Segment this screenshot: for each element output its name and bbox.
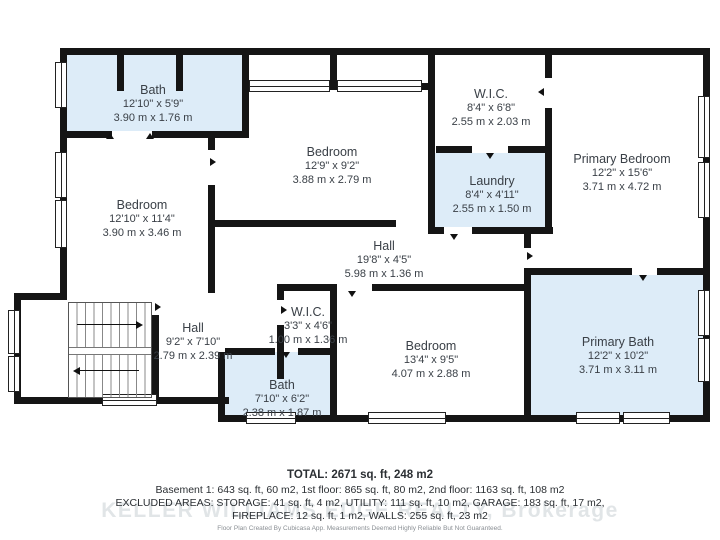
door-marker — [486, 153, 494, 159]
wall-bath-lower-top-a — [225, 348, 275, 355]
window — [8, 356, 20, 392]
wall-bath-upper-bottom-b — [152, 131, 249, 138]
excluded-areas-text-2: FIREPLACE: 12 sq. ft, 1 m2, WALLS: 255 s… — [0, 510, 720, 522]
room-dim-imperial: 9'2" x 7'10" — [154, 336, 233, 350]
room-name: Primary Bath — [579, 335, 657, 349]
room-name: Bedroom — [103, 198, 182, 212]
window — [55, 152, 67, 198]
door-marker — [639, 275, 647, 281]
window — [368, 412, 446, 424]
room-dim-imperial: 8'4" x 6'8" — [452, 102, 531, 116]
wall-wic-laundry-b — [508, 146, 546, 153]
room-dim-imperial: 8'4" x 4'11" — [453, 189, 532, 203]
wall-wic-right-b — [545, 108, 552, 234]
window — [55, 200, 67, 248]
wall-laundry-bottom-b — [472, 227, 553, 234]
wall-wic-small-left-a — [277, 284, 284, 300]
stairs-up-arrow — [77, 324, 137, 325]
room-name: Bath — [114, 83, 193, 97]
wall-wic-right-a — [545, 48, 552, 78]
room-name: Hall — [345, 239, 424, 253]
window — [576, 412, 620, 424]
room-dim-metric: 3.88 m x 2.79 m — [293, 174, 372, 188]
wall-bedroom-lower-top — [372, 284, 525, 291]
wall-bath-upper-right — [242, 48, 249, 138]
room-label-primary-bath: Primary Bath 12'2" x 10'2" 3.71 m x 3.11… — [579, 335, 657, 378]
wall-wic-small-top — [277, 284, 337, 291]
wall-window-stub — [330, 48, 337, 90]
wall-primary-bedroom-stub — [524, 228, 531, 248]
wall-bedroom-left-right-b — [208, 185, 215, 293]
door-marker — [155, 303, 161, 311]
wall-primary-bath-top-b — [657, 268, 710, 275]
door-marker — [210, 158, 216, 166]
room-dim-metric: 2.38 m x 1.87 m — [243, 407, 322, 421]
door-marker — [282, 352, 290, 358]
room-label-primary-bedroom: Primary Bedroom 12'2" x 15'6" 3.71 m x 4… — [573, 152, 670, 195]
room-dim-imperial: 12'10" x 5'9" — [114, 98, 193, 112]
wall-bath-lower-stub — [277, 355, 284, 379]
room-dim-metric: 3.90 m x 3.46 m — [103, 227, 182, 241]
room-label-bath-lower: Bath 7'10" x 6'2" 2.38 m x 1.87 m — [243, 378, 322, 421]
room-label-bath-upper: Bath 12'10" x 5'9" 3.90 m x 1.76 m — [114, 83, 193, 126]
room-label-laundry: Laundry 8'4" x 4'11" 2.55 m x 1.50 m — [453, 174, 532, 217]
window — [249, 80, 330, 92]
disclaimer-text: Floor Plan Created By Cubicasa App. Meas… — [0, 525, 720, 532]
window — [337, 80, 422, 92]
room-label-wic-upper: W.I.C. 8'4" x 6'8" 2.55 m x 2.03 m — [452, 87, 531, 130]
room-name: Bedroom — [293, 145, 372, 159]
room-name: Primary Bedroom — [573, 152, 670, 166]
room-dim-metric: 5.98 m x 1.36 m — [345, 268, 424, 282]
room-name: Bath — [243, 378, 322, 392]
room-name: Hall — [154, 321, 233, 335]
window — [698, 162, 710, 218]
wall-bedroom-mid-bottom — [215, 220, 396, 227]
room-dim-metric: 3.90 m x 1.76 m — [114, 112, 193, 126]
wall-bedroom-left-right-a — [208, 131, 215, 150]
door-marker — [106, 133, 114, 139]
room-label-hall-center: Hall 19'8" x 4'5" 5.98 m x 1.36 m — [345, 239, 424, 282]
room-dim-imperial: 7'10" x 6'2" — [243, 393, 322, 407]
stairs-down-arrow — [79, 370, 139, 371]
room-dim-metric: 2.79 m x 2.39 m — [154, 350, 233, 364]
room-dim-metric: 3.71 m x 3.11 m — [579, 364, 657, 378]
room-dim-imperial: 12'2" x 10'2" — [579, 350, 657, 364]
door-marker — [450, 234, 458, 240]
door-marker — [538, 88, 544, 96]
room-name: W.I.C. — [452, 87, 531, 101]
room-dim-metric: 4.07 m x 2.88 m — [392, 368, 471, 382]
room-dim-metric: 3.71 m x 4.72 m — [573, 181, 670, 195]
room-dim-metric: 2.55 m x 1.50 m — [453, 203, 532, 217]
wall-laundry-bottom-a — [428, 227, 444, 234]
room-dim-imperial: 3'3" x 4'6" — [269, 320, 348, 334]
room-name: Bedroom — [392, 339, 471, 353]
floor-areas-text: Basement 1: 643 sq. ft, 60 m2, 1st floor… — [0, 484, 720, 496]
door-marker — [146, 133, 154, 139]
room-name: W.I.C. — [269, 305, 348, 319]
wall-bath-lower-top-b — [298, 348, 337, 355]
room-dim-imperial: 12'9" x 9'2" — [293, 160, 372, 174]
stairs — [68, 302, 152, 398]
excluded-areas-text-1: EXCLUDED AREAS: STORAGE: 41 sq. ft, 4 m2… — [0, 497, 720, 509]
room-label-bedroom-lower: Bedroom 13'4" x 9'5" 4.07 m x 2.88 m — [392, 339, 471, 382]
room-name: Laundry — [453, 174, 532, 188]
window — [698, 96, 710, 158]
room-dim-imperial: 12'10" x 11'4" — [103, 213, 182, 227]
window — [8, 310, 20, 354]
room-label-bedroom-middle: Bedroom 12'9" x 9'2" 3.88 m x 2.79 m — [293, 145, 372, 188]
wall-primary-bath-left — [524, 268, 531, 422]
room-dim-metric: 2.55 m x 2.03 m — [452, 116, 531, 130]
room-label-bedroom-left: Bedroom 12'10" x 11'4" 3.90 m x 3.46 m — [103, 198, 182, 241]
room-dim-imperial: 13'4" x 9'5" — [392, 354, 471, 368]
window — [698, 338, 710, 382]
wall-top — [60, 48, 710, 55]
window — [623, 412, 670, 424]
room-dim-metric: 1.00 m x 1.36 m — [269, 334, 348, 348]
door-marker — [527, 252, 533, 260]
stair-landing — [69, 347, 151, 355]
wall-primary-bath-top-a — [524, 268, 632, 275]
room-label-hall-left: Hall 9'2" x 7'10" 2.79 m x 2.39 m — [154, 321, 233, 364]
wall-bath-upper-bottom-a — [60, 131, 112, 138]
wall-bay-top — [14, 293, 67, 300]
floor-plan-page: Bath 12'10" x 5'9" 3.90 m x 1.76 m Bedro… — [0, 0, 720, 540]
total-area-text: TOTAL: 2671 sq. ft, 248 m2 — [0, 469, 720, 481]
window — [698, 290, 710, 336]
wall-wic-left — [428, 48, 435, 234]
room-dim-imperial: 19'8" x 4'5" — [345, 254, 424, 268]
door-marker — [348, 291, 356, 297]
room-dim-imperial: 12'2" x 15'6" — [573, 167, 670, 181]
wall-wic-laundry-a — [436, 146, 472, 153]
window — [55, 62, 67, 108]
room-label-wic-small: W.I.C. 3'3" x 4'6" 1.00 m x 1.36 m — [269, 305, 348, 348]
